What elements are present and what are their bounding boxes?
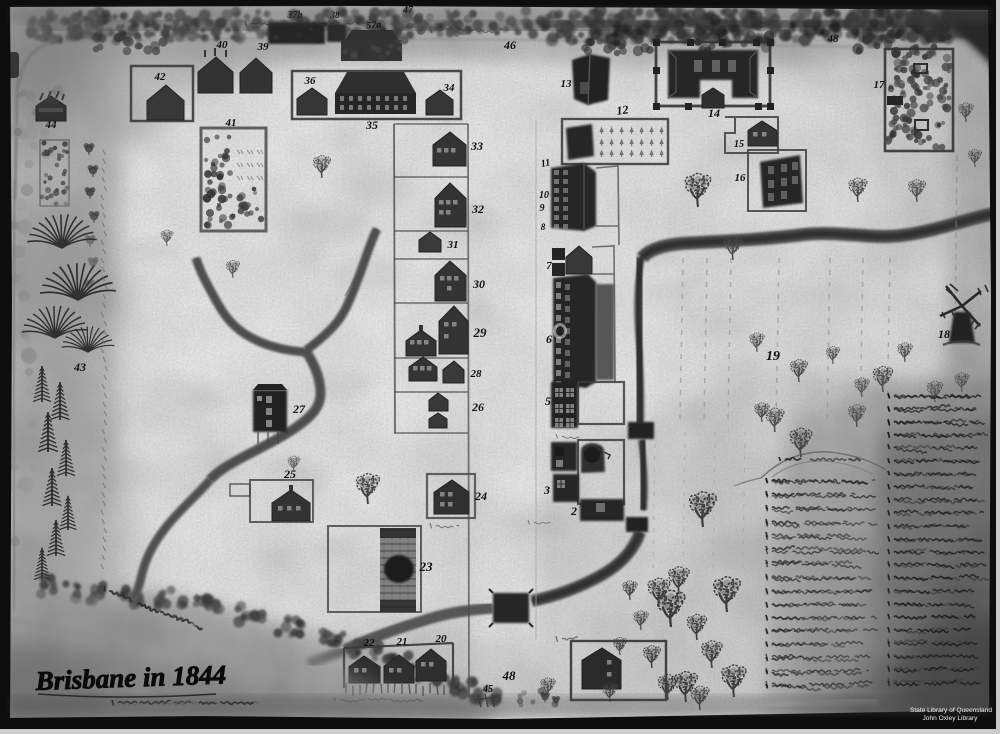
- svg-text:19: 19: [766, 349, 780, 364]
- svg-text:John Oxley Library: John Oxley Library: [923, 715, 979, 722]
- svg-text:48: 48: [827, 33, 840, 45]
- svg-text:29: 29: [473, 325, 488, 340]
- svg-text:23: 23: [419, 559, 434, 574]
- svg-text:41: 41: [225, 117, 237, 129]
- svg-text:24: 24: [474, 489, 487, 503]
- svg-text:46: 46: [503, 38, 516, 52]
- svg-text:8: 8: [541, 222, 546, 232]
- svg-text:15: 15: [734, 139, 744, 150]
- svg-text:32: 32: [471, 202, 484, 216]
- svg-text:11: 11: [540, 157, 551, 169]
- svg-text:26: 26: [471, 400, 484, 414]
- svg-text:42: 42: [154, 71, 167, 83]
- svg-text:31: 31: [447, 239, 459, 251]
- svg-text:18: 18: [938, 327, 950, 341]
- svg-text:10: 10: [539, 190, 549, 201]
- svg-text:48: 48: [502, 668, 517, 683]
- svg-text:6: 6: [546, 332, 552, 346]
- svg-text:33: 33: [470, 139, 483, 153]
- svg-text:12: 12: [616, 102, 630, 118]
- svg-text:39: 39: [257, 41, 270, 53]
- svg-text:27: 27: [292, 402, 306, 416]
- svg-text:36: 36: [304, 75, 317, 87]
- svg-text:16: 16: [735, 172, 747, 184]
- svg-text:2: 2: [570, 504, 577, 518]
- svg-text:9: 9: [540, 203, 545, 214]
- svg-text:5: 5: [545, 394, 551, 408]
- svg-text:13: 13: [561, 78, 573, 90]
- svg-text:17: 17: [874, 79, 886, 91]
- svg-text:21: 21: [396, 636, 408, 648]
- svg-text:20: 20: [435, 633, 448, 645]
- svg-text:40: 40: [216, 39, 229, 51]
- svg-text:3: 3: [543, 483, 550, 497]
- svg-text:34: 34: [443, 82, 456, 94]
- svg-text:43: 43: [73, 360, 86, 374]
- svg-text:28: 28: [470, 368, 483, 380]
- svg-text:44: 44: [45, 119, 58, 131]
- svg-text:7: 7: [546, 260, 552, 272]
- svg-text:14: 14: [708, 106, 720, 120]
- svg-text:35: 35: [365, 118, 378, 132]
- svg-text:30: 30: [472, 277, 485, 291]
- svg-text:22: 22: [363, 637, 376, 649]
- svg-text:State Library of Queensland: State Library of Queensland: [910, 707, 992, 714]
- svg-text:45: 45: [482, 684, 493, 695]
